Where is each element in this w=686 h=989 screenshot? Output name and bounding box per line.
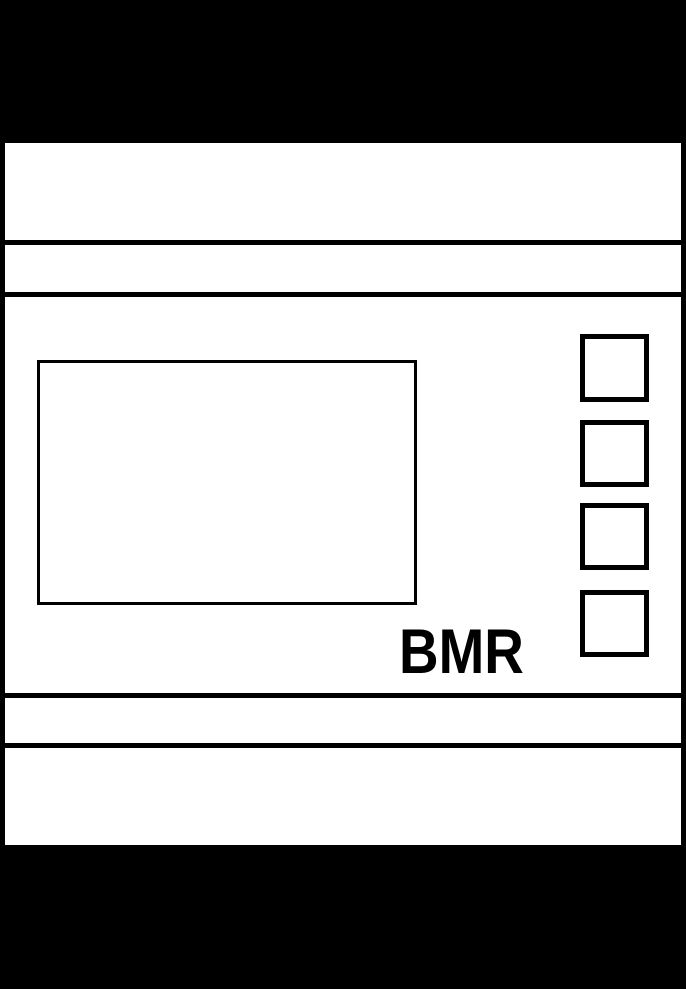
panel-button-2 (580, 420, 649, 487)
panel-button-3 (580, 503, 649, 570)
panel-button-4 (580, 590, 649, 657)
upper-strip (0, 240, 686, 297)
bottom-terminal-cover (0, 743, 686, 850)
lower-strip (0, 693, 686, 748)
panel-button-1 (580, 334, 649, 402)
brand-label: BMR (399, 621, 524, 684)
top-terminal-cover (0, 138, 686, 245)
lcd-display (37, 360, 417, 605)
device-front-drawing: BMR (0, 0, 686, 989)
